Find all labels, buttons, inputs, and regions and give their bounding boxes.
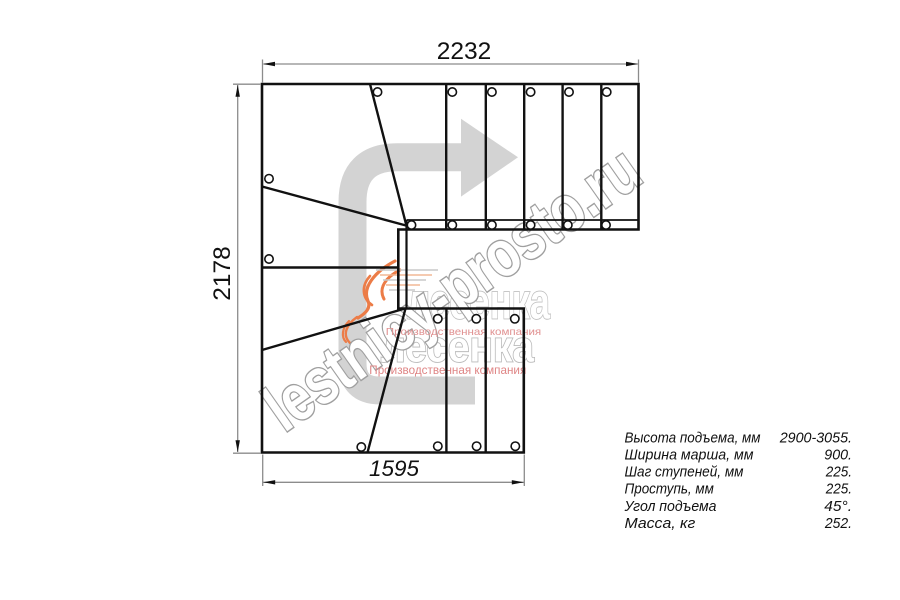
svg-text:Производственная компания: Производственная компания (369, 364, 526, 377)
svg-text:225.: 225. (825, 464, 852, 481)
svg-text:Высота подъема, мм: Высота подъема, мм (625, 429, 761, 446)
svg-text:225.: 225. (825, 481, 852, 498)
svg-text:Масса, кг: Масса, кг (625, 515, 696, 532)
svg-text:2178: 2178 (209, 246, 236, 301)
svg-text:252.: 252. (824, 515, 852, 532)
svg-text:900.: 900. (824, 447, 852, 464)
svg-text:2232: 2232 (437, 38, 492, 65)
svg-text:Проступь, мм: Проступь, мм (625, 481, 714, 498)
svg-text:2900-3055.: 2900-3055. (779, 429, 852, 446)
svg-text:Ширина марша, мм: Ширина марша, мм (625, 447, 754, 464)
svg-text:1595: 1595 (369, 456, 420, 481)
svg-text:Угол подъема: Угол подъема (624, 498, 717, 515)
svg-text:45°.: 45°. (824, 498, 852, 515)
svg-text:Шаг ступеней, мм: Шаг ступеней, мм (625, 464, 744, 481)
svg-text:Производственная компания: Производственная компания (386, 327, 541, 338)
